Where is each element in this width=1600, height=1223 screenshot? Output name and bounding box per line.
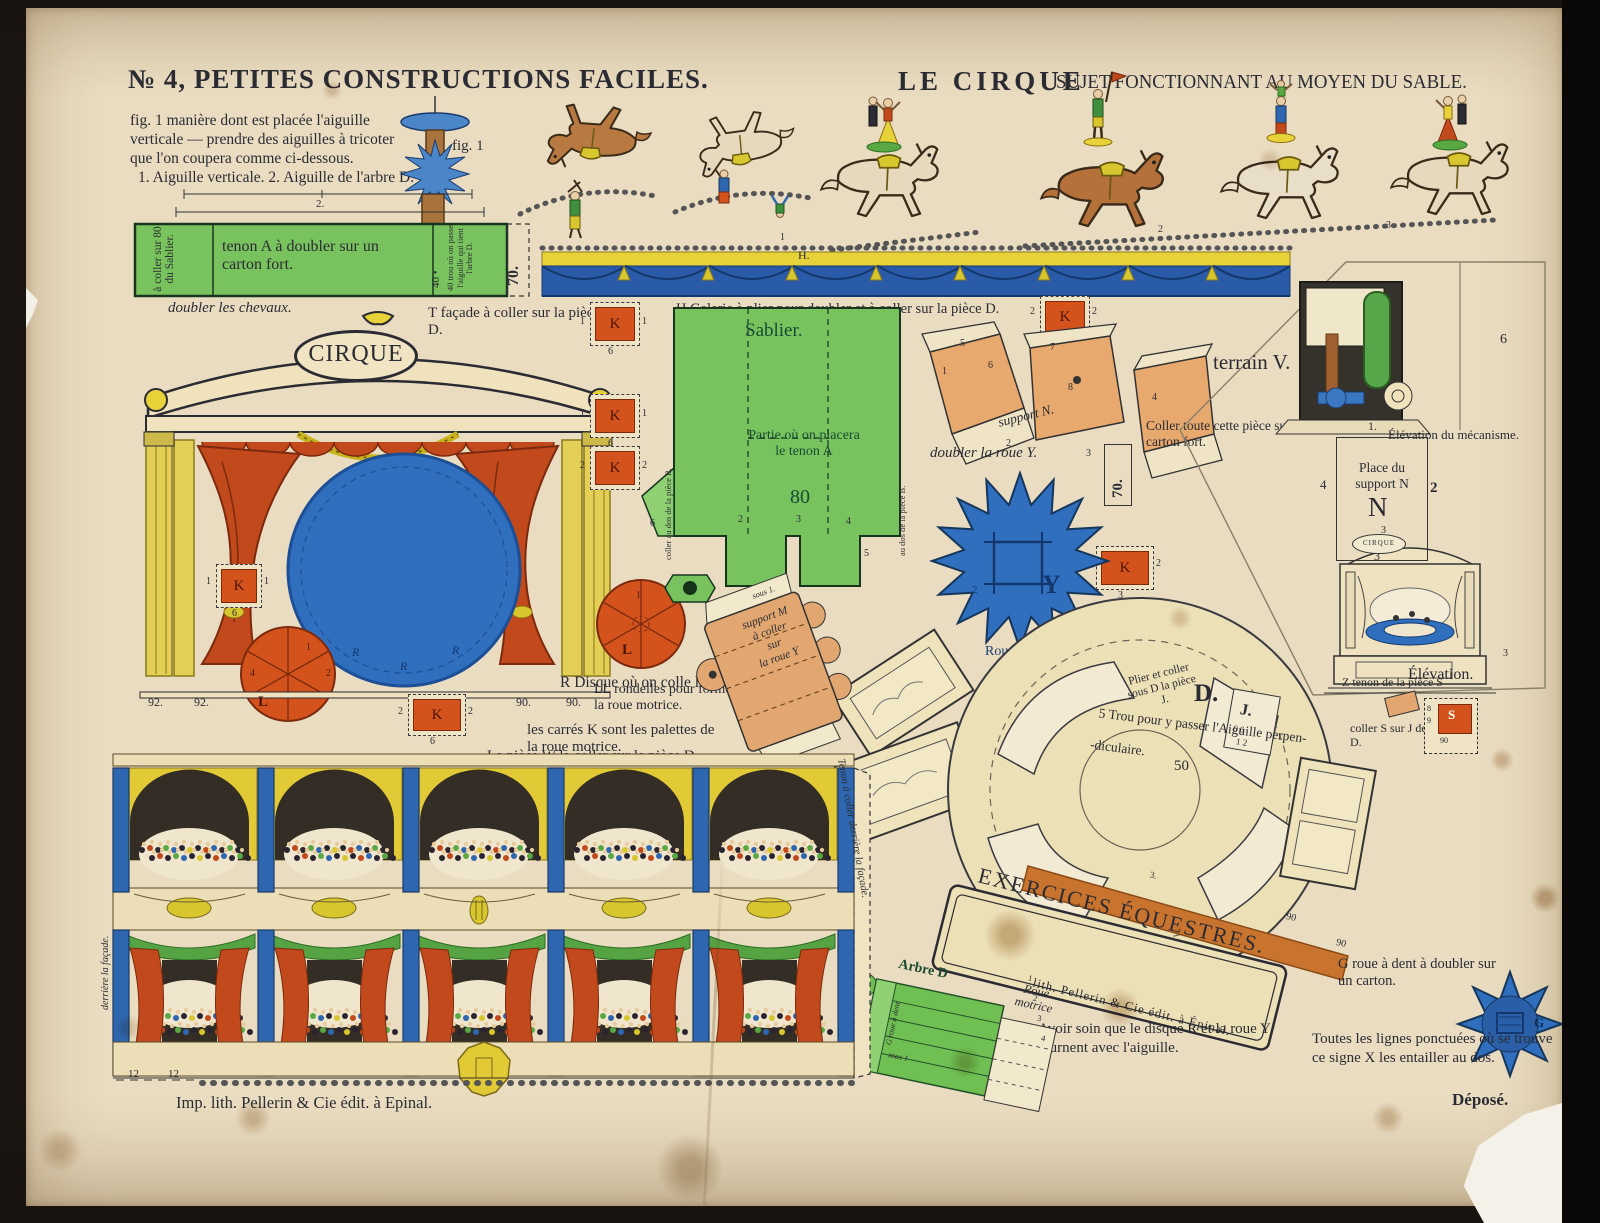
depose-stamp: Déposé. [1452,1090,1508,1110]
strip-right-label: 40 trou où on passe l'aiguille qui tient… [446,224,475,292]
acrobat-figure [568,180,582,238]
dancer-couple [867,97,901,152]
facade-base-num: 92. [148,696,163,710]
supportn-num: 1 [942,366,947,378]
k-letter: K [610,460,621,477]
strip-hole-label: 40 • [430,270,443,288]
scan-background-band [1562,0,1600,1223]
k-num: 1 [580,408,585,420]
theatre-num-12: 12 [128,1068,139,1081]
k-num: 2 [398,706,403,718]
disc-letter-r: R [452,644,459,658]
facade-base-num: 90. [566,696,581,710]
place-letter-n: N [1368,492,1388,523]
mini-elev-num: 3 [1381,525,1386,537]
lyre-ornament [470,896,488,924]
k-num: 2 [1092,306,1097,318]
gallery-letter: H. [798,249,810,263]
theatre-interior-piece [112,752,872,1114]
sablier-edge-left: coller au dos de la pièce B. [664,468,674,560]
scanned-print-le-cirque: № 4, PETITES CONSTRUCTIONS FACILES. LE C… [0,0,1600,1223]
place-support-n-title: Place du support N [1342,460,1422,491]
support-m-piece [692,578,852,766]
place-num-1: 1. [1368,420,1377,434]
disc-num-50: 50 [1174,758,1189,775]
plier-l3: J. [1160,693,1170,706]
tier1-bays [122,768,837,880]
s-num-8: 8 [1427,704,1431,713]
sablier-edge-right: au dos de la pièce B. [898,486,908,556]
horse-num: 2 [1158,224,1163,236]
wheel1-num: 4 [250,668,255,680]
k-letter: K [1120,560,1131,577]
imprint-line: Imp. lith. Pellerin & Cie édit. à Epinal… [176,1094,432,1113]
acrobat-figure [719,170,729,203]
supportn-num: 6 [988,360,993,372]
k-num: 1 [264,576,269,588]
mini-elev-num: 3 [1503,648,1508,660]
disc-letter-r: R [400,660,407,674]
k-num: 2 [1156,558,1161,570]
theatre-num-12: 12 [168,1068,179,1081]
place-num-4: 4 [1320,478,1327,493]
supportn-num: 3 [1086,448,1091,460]
fig1-line4: 1. Aiguille verticale. 2. Aiguille de l'… [138,169,414,187]
k-letter: K [610,408,621,425]
k-letter: K [234,578,245,595]
k-square-piece: K [590,394,640,438]
wheel-letter-l: L [258,694,268,711]
horse-vignettes-row [480,86,1510,258]
sablier-tab-num: 6 [650,518,655,530]
k-num: 1 [642,408,647,420]
mini-circus-sign: CIRQUE [1352,534,1406,554]
k-letter: K [610,316,621,333]
s-num-90: 90 [1440,736,1448,745]
disc-letter-r: R [352,646,359,660]
rider-with-child [1267,81,1295,143]
k-num: 1 [206,576,211,588]
caption-doubler-roue-y: doubler la roue Y. [930,445,1040,462]
k-num: 1 [580,316,585,328]
fig1-ruler-lines [172,186,492,222]
k-square-piece: K [590,446,640,490]
sablier-tab-num: 2 [738,514,743,526]
k-num: 6 [608,346,613,358]
g-star-letter: G [1534,1016,1544,1031]
theatre-left-edge-label: derrière la façade. [100,936,112,1010]
arbre-d-piece [852,942,1087,1094]
supportn-num: 5 [960,338,965,350]
caption-lignes-ponctuees: Toutes les lignes ponctuées où se trouve… [1312,1030,1567,1068]
tier2-bays [124,934,835,1044]
k-num: 2 [468,706,473,718]
facade-sign: CIRQUE [294,330,418,382]
k-letter: K [432,707,443,724]
k-square-piece: K [408,694,466,736]
k-square-piece: K [590,302,640,346]
place-num-2: 2 [1430,480,1438,497]
supportn-num: 7 [1050,342,1055,354]
tumbler-figure [772,196,788,218]
k-num: 2 [580,460,585,472]
sablier-tab-num: 4 [846,516,851,528]
sablier-title: Sablier. [745,320,803,342]
wheel1-num: 2 [326,668,331,680]
fig1-line2: verticale — prendre des aiguilles à tric… [130,131,394,149]
fig1-line3: que l'on coupera comme ci-dessous. [130,150,354,168]
sablier-partie: Partie où on placera le tenon A [748,428,860,460]
disc-letter-d: D. [1194,680,1218,709]
k-num: 6 [430,736,435,748]
terrain-v-label: terrain V. [1213,350,1290,374]
supportn-num: 4 [1152,392,1157,404]
k-num: 2 [642,460,647,472]
facade-base-num: 90. [516,696,531,710]
s-num-9: 9 [1427,716,1431,725]
s-letter: S [1448,708,1455,723]
supportn-num: 8 [1068,382,1073,394]
strip-70: 70. [505,266,523,286]
k-num: 1 [642,316,647,328]
k-square-piece: K [216,564,262,608]
strip-main-label: tenon A à doubler sur un carton fort. [222,238,407,275]
k-num: 2 [1030,306,1035,318]
sablier-tab-num: 3 [796,514,801,526]
wheel1-num: 1 [306,642,311,654]
k-num: 6 [232,608,237,620]
dancer-couple [1433,95,1467,150]
z-tenon-label: Z tenon de la pièce S [1342,676,1443,690]
fig1-line1: fig. 1 manière dont est placée l'aiguill… [130,112,370,130]
horse-num: 3 [1386,220,1391,232]
terrain-num-6: 6 [1500,332,1507,348]
strip-left-label: à coller sur 80 du Sablier. [152,226,176,292]
facade-base-num: 92. [194,696,209,710]
sablier-tab-num: 5 [864,548,869,560]
sablier-80: 80 [790,486,810,509]
wheel-letter-l: L [622,642,632,659]
